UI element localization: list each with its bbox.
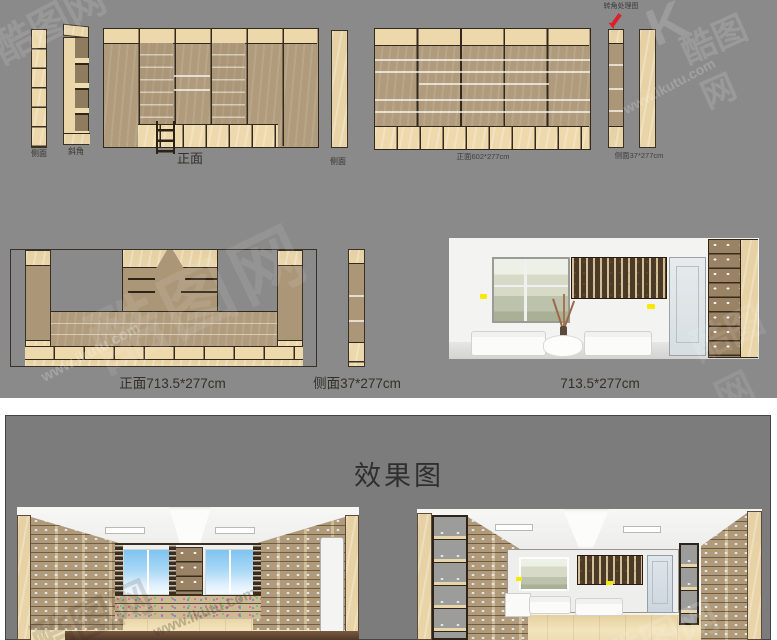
label-render-elevation: 713.5*277cm	[540, 377, 660, 392]
center-counter	[115, 595, 261, 619]
side4-cap	[349, 250, 364, 264]
center-top-left	[123, 250, 167, 268]
corner-shelf-3	[75, 108, 89, 115]
elevation-side-strip-2	[331, 30, 348, 148]
shelf-side-panel	[740, 240, 758, 357]
front1-shelf-line-a	[174, 75, 210, 77]
front3-center-unit	[122, 250, 218, 311]
corner-bottom-cap	[64, 133, 90, 144]
win2-mullion	[229, 550, 231, 594]
yellow-light-r1	[516, 577, 522, 581]
front1-shelf-line-b	[174, 89, 210, 91]
window-mullion-v	[524, 259, 527, 321]
wall-render-elevation	[449, 238, 759, 359]
elevation-front-3	[10, 249, 317, 367]
right-shelf-unit	[708, 239, 758, 358]
yellow-light-1	[480, 294, 487, 299]
front3-counter-band	[51, 311, 277, 346]
label-side-4: 侧面37*277cm	[298, 377, 416, 392]
foreground-table	[65, 631, 359, 640]
ac-grille	[324, 544, 340, 566]
design-sheet: 侧面 斜角 正面 侧面 正面602*277cm	[0, 0, 777, 640]
elevation-corner-strip	[608, 29, 624, 148]
white-side-cabinet	[505, 593, 531, 617]
counter-line-2	[51, 334, 277, 335]
ceiling-light-r1	[495, 524, 533, 531]
door	[669, 257, 706, 356]
sofa-right	[584, 331, 652, 356]
elevation-side-4	[348, 249, 365, 367]
door-r	[647, 555, 673, 613]
front2-line-1	[375, 59, 590, 61]
shelf-items-column	[709, 240, 740, 357]
elevation-side-strip-3	[639, 29, 656, 148]
front2-line-5	[375, 111, 590, 113]
door-panel	[676, 266, 699, 343]
right-pillar-r	[747, 511, 762, 640]
label-front-3: 正面713.5*277cm	[55, 377, 290, 392]
front1-shelf-column-4	[212, 43, 245, 124]
window-mullion-h	[494, 285, 568, 287]
ceiling-light-r2	[623, 526, 661, 533]
front2-line-3	[419, 83, 549, 85]
corner-shelf-1	[75, 58, 89, 65]
ac-unit	[320, 537, 344, 637]
ceiling-light-2	[215, 527, 255, 534]
right-pillar	[345, 515, 359, 640]
side4-line-2	[349, 320, 364, 322]
corner-strip-line-3	[609, 110, 623, 112]
ladder-icon	[156, 121, 175, 154]
label-front-2: 正面602*277cm	[423, 153, 543, 161]
front2-bottom-cells	[375, 126, 589, 149]
front1-top-band	[104, 29, 317, 44]
corner-strip-line-1	[609, 64, 623, 66]
center-shelf-mark-4	[181, 291, 217, 293]
center-top-right	[173, 250, 217, 268]
corner-unit-body	[63, 37, 89, 145]
left-pillar-r	[417, 513, 432, 640]
room-render-left	[17, 507, 359, 640]
corner-note-text: 转角处理图	[592, 3, 650, 11]
corner-strip-bottom	[609, 126, 623, 147]
side4-cells	[349, 342, 364, 366]
label-side-3: 侧面37*277cm	[594, 152, 684, 160]
corner-open-shelf	[432, 515, 468, 640]
bottom-plinth	[25, 360, 303, 366]
back-window-2	[205, 549, 257, 595]
front3-right-cap	[278, 251, 302, 266]
counter-line-1	[51, 323, 277, 324]
ceiling-light-1	[105, 527, 145, 534]
dark-post-2	[169, 545, 176, 597]
front2-line-2	[375, 71, 590, 73]
front2-top-band	[375, 29, 589, 46]
red-arrow-head	[608, 23, 615, 30]
corner-shelf-2	[75, 83, 89, 90]
label-side-2: 侧面	[315, 158, 361, 167]
sofa-r2	[575, 598, 623, 616]
back-window-1	[123, 549, 175, 595]
bottom-cells-row	[25, 347, 303, 360]
front3-left-cap	[26, 251, 50, 266]
page-title: 效果图	[21, 462, 777, 492]
front2-line-4	[375, 99, 590, 101]
yellow-light-2	[647, 304, 655, 309]
center-display-shelf	[175, 547, 203, 595]
sofa-r1	[529, 596, 571, 614]
narrow-display-shelf-r	[679, 543, 699, 625]
front1-shelf-column-2	[140, 43, 173, 124]
round-table	[543, 335, 583, 357]
center-shelf-mark-2	[185, 278, 217, 280]
back-window-r	[519, 557, 569, 591]
elevation-front-2	[374, 28, 591, 150]
label-front-1: 正面	[158, 152, 222, 166]
elevation-side-strip-1	[31, 29, 47, 148]
door-r-panel	[652, 561, 668, 604]
side4-line-1	[349, 295, 364, 297]
yellow-light-r2	[606, 581, 613, 585]
win1-mullion	[147, 550, 149, 594]
left-pillar	[17, 515, 31, 640]
center-shelf-mark-3	[128, 291, 155, 293]
display-lattice-rack	[571, 257, 667, 299]
elevation-front-1	[103, 28, 319, 148]
sofa-left	[471, 331, 546, 356]
corner-strip-cap	[609, 30, 623, 44]
corner-strip-line-2	[609, 88, 623, 90]
center-shelf-mark-1	[128, 278, 155, 280]
room-render-right	[417, 509, 762, 640]
front3-bottom-rows	[25, 346, 303, 366]
label-corner: 斜角	[56, 148, 96, 157]
ac-vent	[324, 604, 340, 630]
